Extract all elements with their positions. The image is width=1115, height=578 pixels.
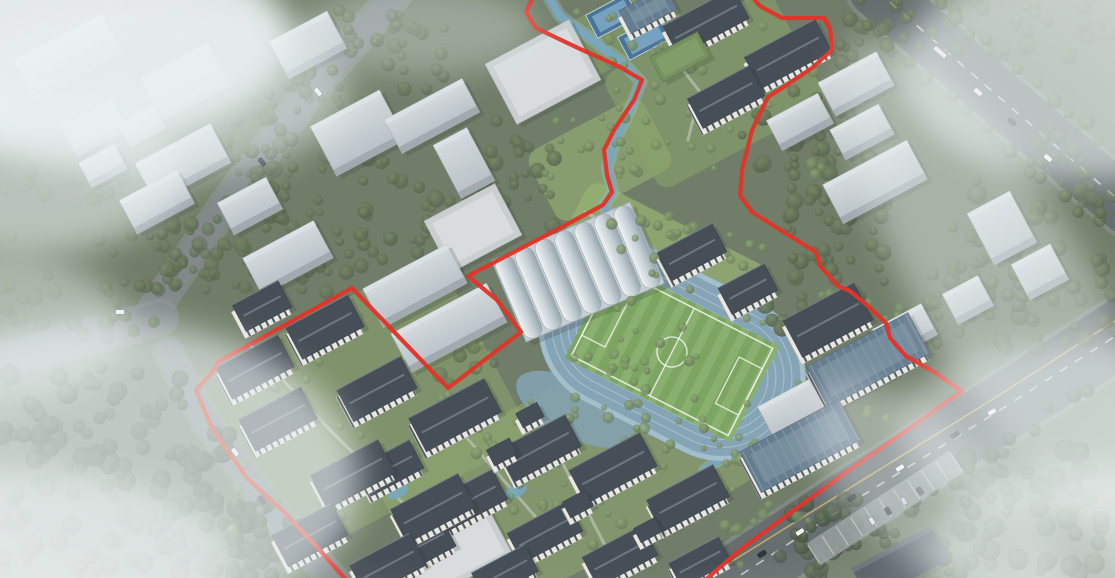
screenshot-canvas <box>0 0 1115 578</box>
aerial-rendering <box>0 0 1115 578</box>
edge-vignette <box>0 0 1115 578</box>
atmosphere-haze <box>0 0 1115 578</box>
